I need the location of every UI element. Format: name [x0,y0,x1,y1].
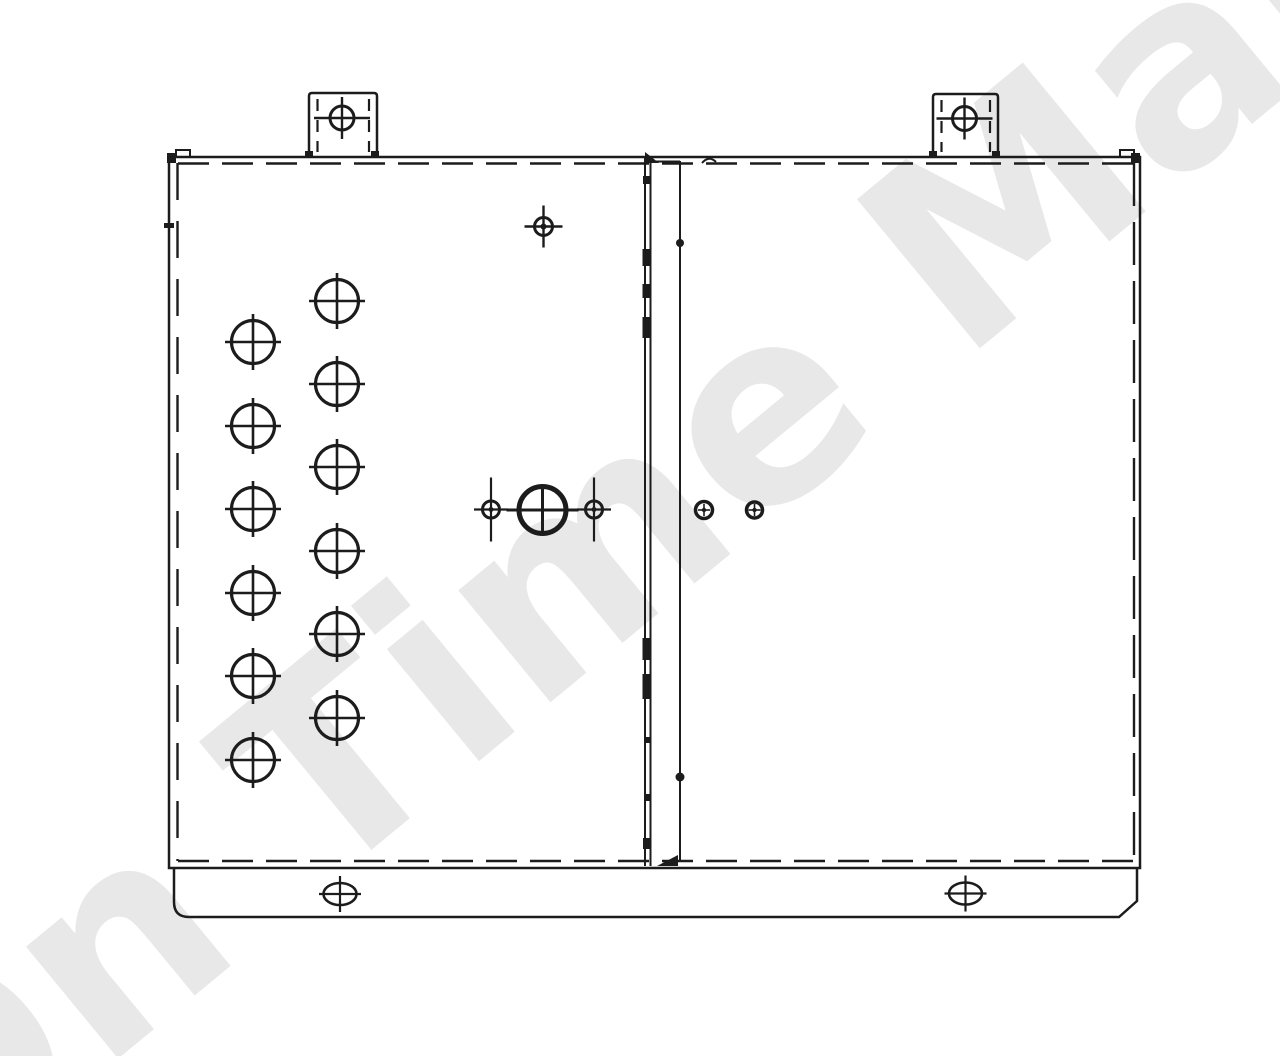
panel-hole [225,314,281,370]
stud-fastener [696,502,713,519]
tab-hole [314,97,370,139]
top-pilot-hole-mark [525,206,563,248]
divider-bottom-wedge [657,855,678,866]
panel-hole [309,439,365,495]
watermark-text: On Time Mall [0,0,1280,1056]
panel-hole [225,398,281,454]
panel-hole [309,273,365,329]
panel-hole [225,481,281,537]
enclosure-technical-drawing: On Time Mall [0,0,1280,1056]
product-drawing-page: On Time Mall [0,0,1280,1056]
stud-fastener [747,502,763,518]
panel-hole [309,356,365,412]
flange-hole [945,876,987,912]
top-pilot-hole [525,206,563,248]
